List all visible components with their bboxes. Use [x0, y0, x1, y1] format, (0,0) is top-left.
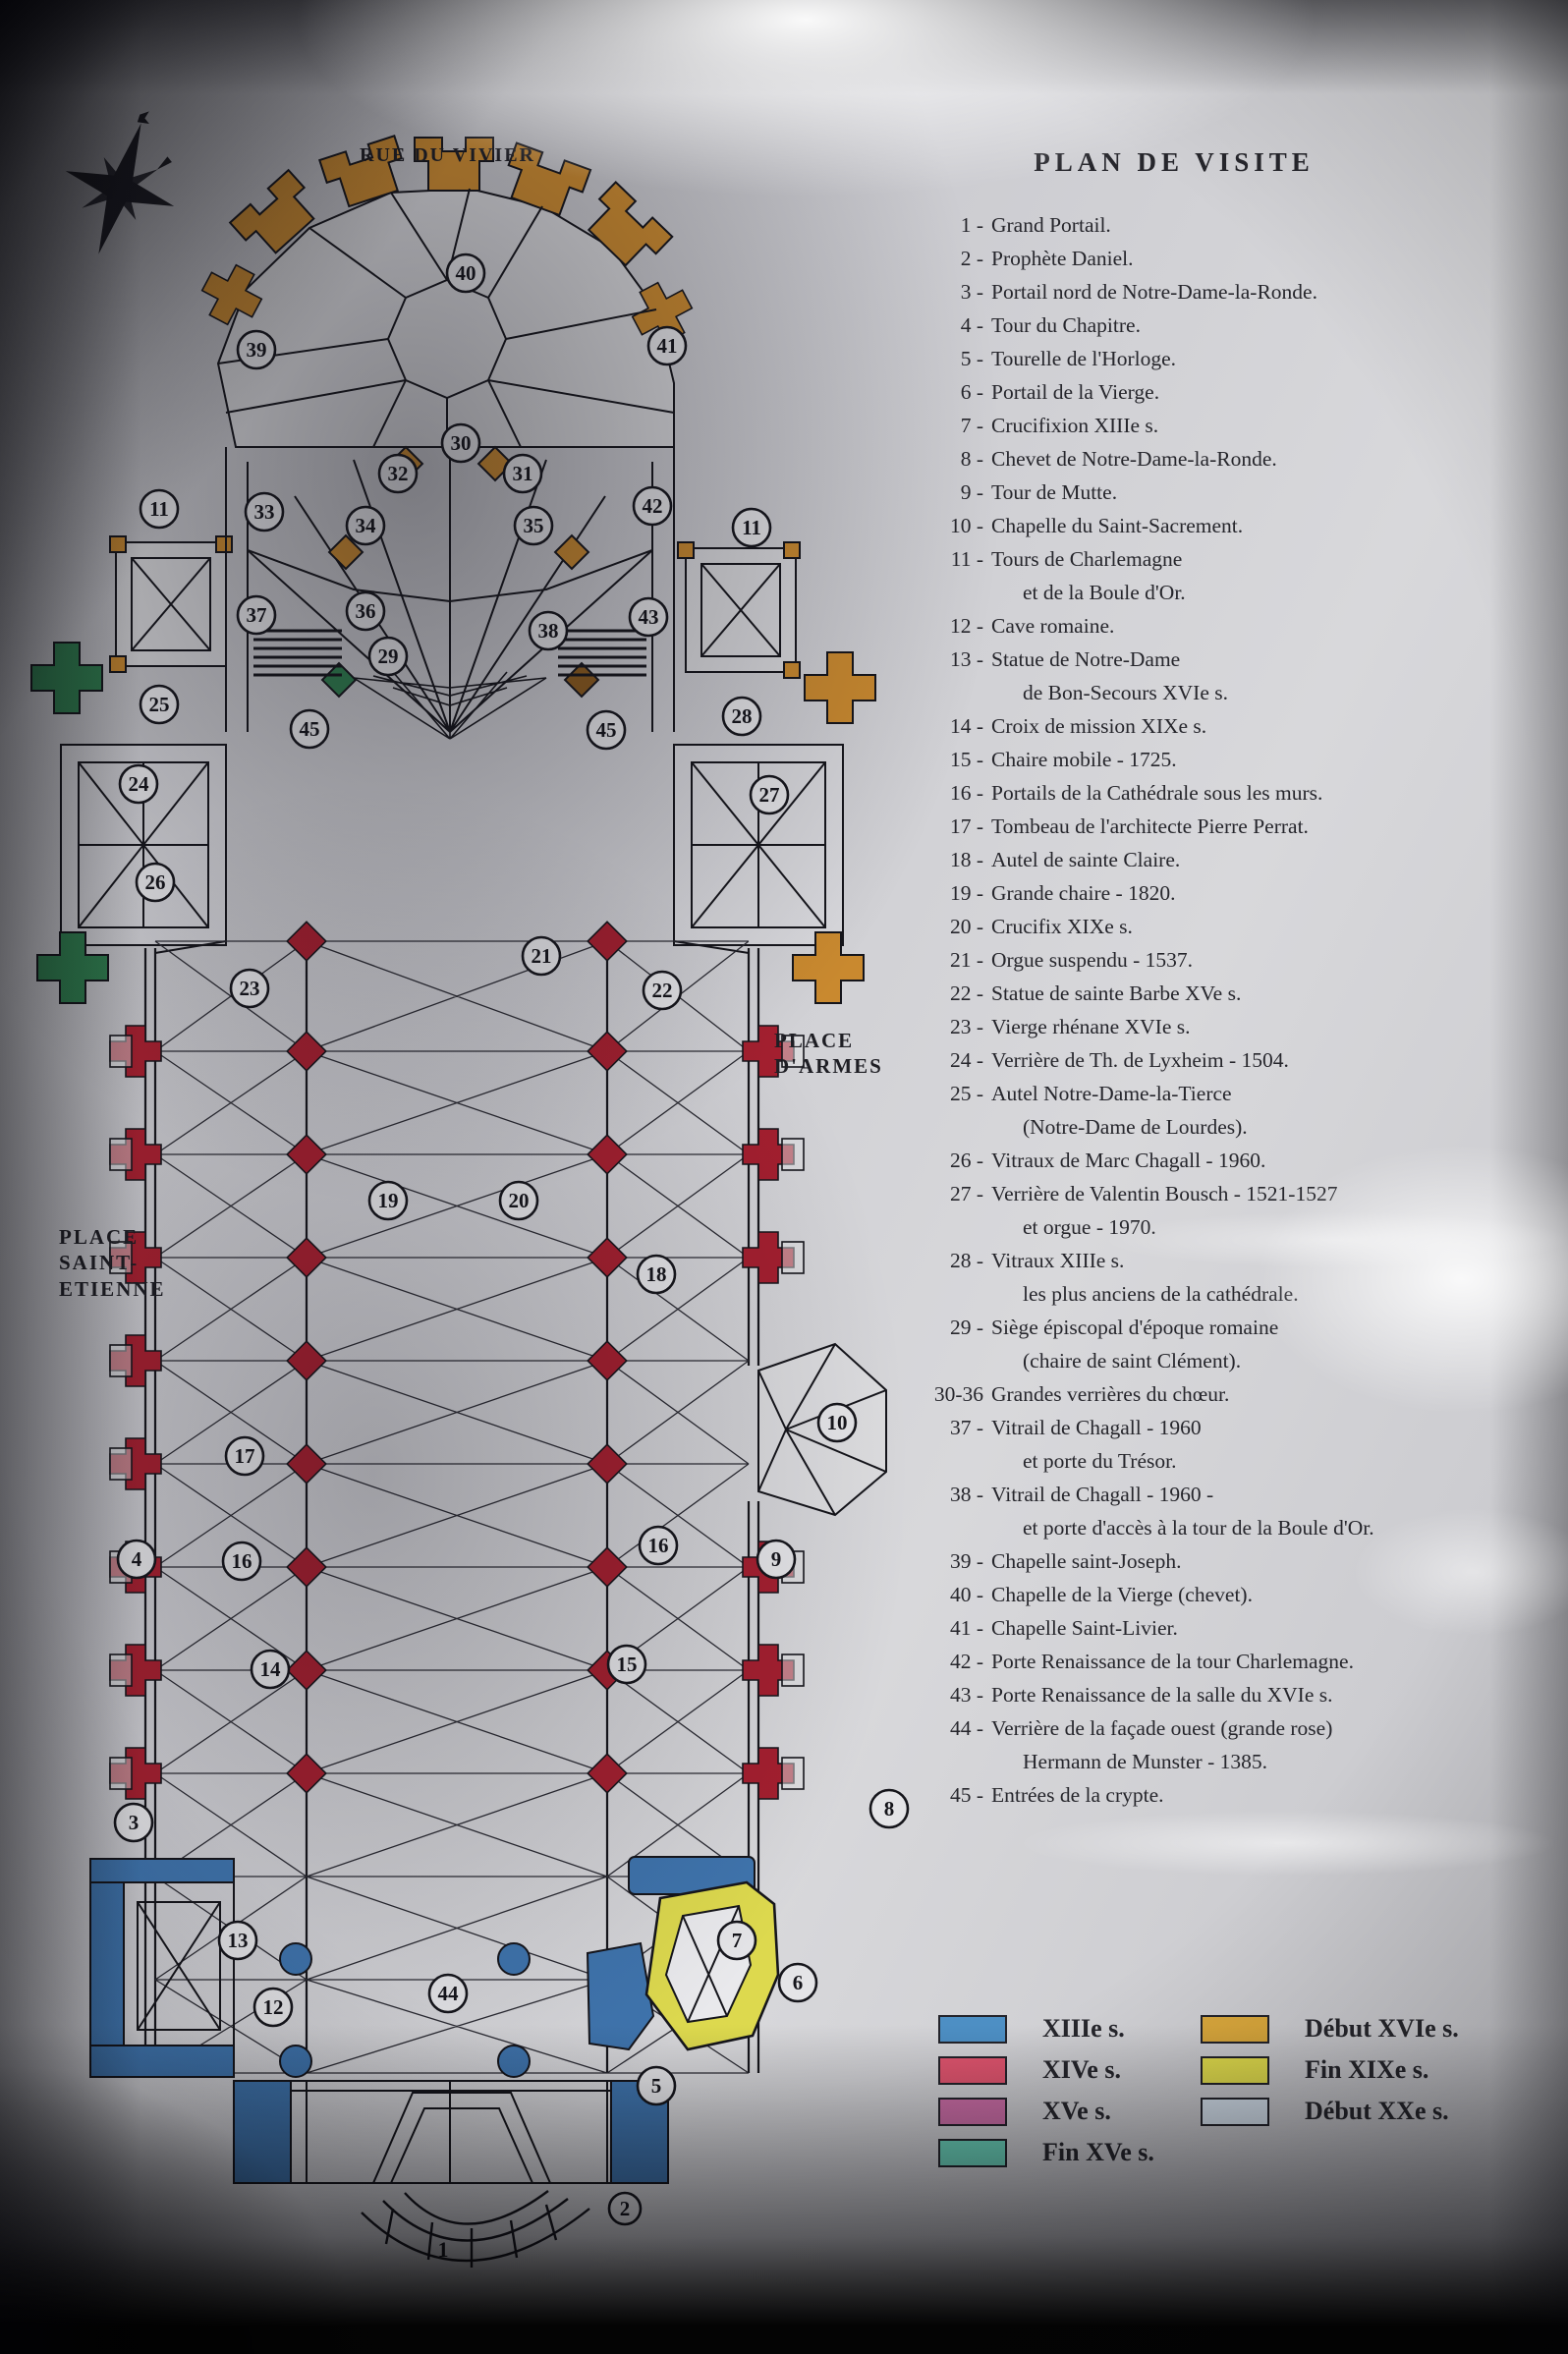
svg-text:11: 11: [742, 516, 761, 539]
visit-list-item-label: Tourelle de l'Horloge.: [991, 342, 1565, 375]
legend-item: Fin XIXe s.: [1201, 2049, 1459, 2091]
legend-color-swatch: [1201, 2015, 1269, 2044]
svg-text:24: 24: [129, 772, 150, 796]
plan-marker-18: 18: [638, 1256, 675, 1293]
visit-list-item-continuation: Hermann de Munster - 1385.: [928, 1745, 1565, 1778]
visit-list-item-label: Tour du Chapitre.: [991, 308, 1565, 342]
visit-list-item-label: Vitraux de Marc Chagall - 1960.: [991, 1144, 1565, 1177]
legend-label: XIIIe s.: [1042, 2014, 1125, 2044]
svg-text:26: 26: [145, 870, 166, 894]
svg-text:28: 28: [732, 704, 753, 728]
plan-marker-36: 36: [347, 592, 384, 630]
visit-list-item-label: Portail de la Vierge.: [991, 375, 1565, 409]
visit-list-item-number: 18 -: [928, 843, 991, 876]
visit-list-item-label: Grand Portail.: [991, 208, 1565, 242]
plan-marker-15: 15: [608, 1646, 645, 1683]
visit-list-item-label: Crucifixion XIIIe s.: [991, 409, 1565, 442]
plan-marker-13: 13: [219, 1922, 256, 1959]
visit-list-item-number: 43 -: [928, 1678, 991, 1711]
svg-text:8: 8: [884, 1797, 895, 1821]
visit-list-item: 29 -Siège épiscopal d'époque romaine: [928, 1311, 1565, 1344]
visit-list-item-continuation: et porte du Trésor.: [928, 1444, 1565, 1478]
visit-list-item: 24 -Verrière de Th. de Lyxheim - 1504.: [928, 1043, 1565, 1077]
visit-list-item-number: 7 -: [928, 409, 991, 442]
svg-text:29: 29: [378, 645, 399, 668]
plan-marker-30: 30: [442, 424, 479, 462]
visit-list: 1 -Grand Portail.2 -Prophète Daniel.3 -P…: [928, 208, 1565, 1812]
plan-marker-25: 25: [140, 686, 178, 723]
visit-list-item-number: 4 -: [928, 308, 991, 342]
legend-color-swatch: [938, 2056, 1007, 2085]
legend-label: XIVe s.: [1042, 2055, 1121, 2085]
visit-list-item-number: 23 -: [928, 1010, 991, 1043]
legend-item: Début XXe s.: [1201, 2091, 1459, 2132]
visit-list-item-label: Chapelle saint-Joseph.: [991, 1544, 1565, 1578]
legend-right-column: Début XVIe s.Fin XIXe s.Début XXe s.: [1201, 2008, 1459, 2132]
plan-marker-17: 17: [226, 1437, 263, 1475]
visit-list-item: 2 -Prophète Daniel.: [928, 242, 1565, 275]
plan-marker-9: 9: [757, 1541, 795, 1578]
visit-list-item-number: 22 -: [928, 977, 991, 1010]
visit-list-item: 15 -Chaire mobile - 1725.: [928, 743, 1565, 776]
legend-color-swatch: [1201, 2056, 1269, 2085]
plan-marker-6: 6: [779, 1964, 816, 2001]
svg-text:22: 22: [652, 979, 673, 1002]
visit-list-item-label: Portails de la Cathédrale sous les murs.: [991, 776, 1565, 810]
plan-marker-42: 42: [634, 487, 671, 525]
legend-item: XIVe s.: [938, 2049, 1154, 2091]
plan-marker-1: 1: [438, 2237, 449, 2262]
visit-list-item: 1 -Grand Portail.: [928, 208, 1565, 242]
visit-list-item: 30-36Grandes verrières du chœur.: [928, 1377, 1565, 1411]
plan-marker-38: 38: [530, 612, 567, 649]
visit-list-item-number: 12 -: [928, 609, 991, 643]
svg-text:9: 9: [771, 1547, 782, 1571]
legend-item: Début XVIe s.: [1201, 2008, 1459, 2049]
plan-marker-8: 8: [870, 1790, 908, 1827]
tower-charlemagne: [110, 536, 232, 672]
visit-list-item-label: Tour de Mutte.: [991, 476, 1565, 509]
svg-text:32: 32: [388, 462, 409, 485]
visit-list-item: 40 -Chapelle de la Vierge (chevet).: [928, 1578, 1565, 1611]
svg-text:45: 45: [596, 718, 617, 742]
svg-text:4: 4: [132, 1547, 142, 1571]
visit-list-item-label: Tours de Charlemagne: [991, 542, 1565, 576]
svg-text:14: 14: [260, 1657, 282, 1681]
legend-label: Fin XVe s.: [1042, 2138, 1154, 2167]
visit-list-item: 45 -Entrées de la crypte.: [928, 1778, 1565, 1812]
visit-list-item: 20 -Crucifix XIXe s.: [928, 910, 1565, 943]
legend-label: Début XXe s.: [1305, 2097, 1449, 2126]
visit-list-item: 26 -Vitraux de Marc Chagall - 1960.: [928, 1144, 1565, 1177]
visit-list-item-label: Verrière de la façade ouest (grande rose…: [991, 1711, 1565, 1745]
visit-list-item-number: 27 -: [928, 1177, 991, 1210]
svg-text:33: 33: [254, 500, 275, 524]
plan-marker-19: 19: [369, 1182, 407, 1219]
svg-text:11: 11: [149, 497, 169, 521]
choir: [226, 444, 674, 739]
svg-text:34: 34: [356, 514, 377, 537]
plan-marker-12: 12: [254, 1989, 292, 2026]
visit-list-item-label: Chaire mobile - 1725.: [991, 743, 1565, 776]
tower-boule-dor: [678, 542, 800, 678]
visit-list-item-label: Chapelle du Saint-Sacrement.: [991, 509, 1565, 542]
visit-list-item-continuation: et porte d'accès à la tour de la Boule d…: [928, 1511, 1565, 1544]
visit-list-item: 16 -Portails de la Cathédrale sous les m…: [928, 776, 1565, 810]
visit-list-item-number: 14 -: [928, 709, 991, 743]
visit-list-item-label: Vitrail de Chagall - 1960 -: [991, 1478, 1565, 1511]
svg-text:30: 30: [451, 431, 472, 455]
svg-text:23: 23: [240, 977, 260, 1000]
plan-marker-37: 37: [238, 596, 275, 634]
plan-marker-24: 24: [120, 765, 157, 803]
plan-marker-26: 26: [137, 864, 174, 901]
plan-marker-39: 39: [238, 331, 275, 368]
visit-list-item-label: Porte Renaissance de la salle du XVIe s.: [991, 1678, 1565, 1711]
svg-text:7: 7: [732, 1929, 743, 1952]
visit-list-item-number: 9 -: [928, 476, 991, 509]
visit-list-item-number: 1 -: [928, 208, 991, 242]
plan-marker-4: 4: [118, 1541, 155, 1578]
visit-list-item: 11 -Tours de Charlemagne: [928, 542, 1565, 576]
legend-color-swatch: [1201, 2098, 1269, 2126]
visit-list-item-number: 20 -: [928, 910, 991, 943]
plan-marker-40: 40: [447, 254, 484, 292]
svg-text:43: 43: [639, 605, 659, 629]
legend-item: Fin XVe s.: [938, 2132, 1154, 2173]
visit-list-item-number: 40 -: [928, 1578, 991, 1611]
visit-list-item-label: Statue de sainte Barbe XVe s.: [991, 977, 1565, 1010]
svg-text:39: 39: [247, 338, 267, 362]
visit-list-item-label: Vitrail de Chagall - 1960: [991, 1411, 1565, 1444]
visit-list-item-number: 26 -: [928, 1144, 991, 1177]
visit-list-item-label: Vitraux XIIIe s.: [991, 1244, 1565, 1277]
visit-list-item-label: Cave romaine.: [991, 609, 1565, 643]
plan-marker-20: 20: [500, 1182, 537, 1219]
svg-text:27: 27: [759, 783, 780, 807]
visit-list-item-label: Tombeau de l'architecte Pierre Perrat.: [991, 810, 1565, 843]
visit-list-item: 44 -Verrière de la façade ouest (grande …: [928, 1711, 1565, 1745]
visit-list-item-number: 29 -: [928, 1311, 991, 1344]
visit-list-item-label: Chapelle Saint-Livier.: [991, 1611, 1565, 1645]
svg-text:19: 19: [378, 1189, 399, 1212]
plan-marker-45: 45: [291, 710, 328, 748]
visit-list-item-label: Chevet de Notre-Dame-la-Ronde.: [991, 442, 1565, 476]
svg-text:20: 20: [509, 1189, 530, 1212]
yellow-chapel: [646, 1882, 778, 2049]
visit-list-item-continuation: et orgue - 1970.: [928, 1210, 1565, 1244]
plan-marker-21: 21: [523, 937, 560, 975]
svg-text:40: 40: [456, 261, 476, 285]
svg-text:16: 16: [232, 1549, 252, 1573]
svg-text:13: 13: [228, 1929, 249, 1952]
legend-label: Fin XIXe s.: [1305, 2055, 1428, 2085]
visit-list-item: 25 -Autel Notre-Dame-la-Tierce: [928, 1077, 1565, 1110]
visit-list-item-number: 8 -: [928, 442, 991, 476]
page-title: PLAN DE VISITE: [928, 147, 1420, 178]
visit-list-item-label: Chapelle de la Vierge (chevet).: [991, 1578, 1565, 1611]
visit-list-item-label: Statue de Notre-Dame: [991, 643, 1565, 676]
visit-list-item: 43 -Porte Renaissance de la salle du XVI…: [928, 1678, 1565, 1711]
visit-list-item-number: 11 -: [928, 542, 991, 576]
plan-marker-29: 29: [369, 638, 407, 675]
plan-marker-16: 16: [640, 1527, 677, 1564]
svg-text:6: 6: [793, 1971, 804, 1994]
visit-list-item: 27 -Verrière de Valentin Bousch - 1521-1…: [928, 1177, 1565, 1210]
visit-list-item-number: 39 -: [928, 1544, 991, 1578]
visit-list-item: 9 -Tour de Mutte.: [928, 476, 1565, 509]
plan-marker-3: 3: [115, 1804, 152, 1841]
plan-marker-2: 2: [609, 2193, 641, 2224]
visit-list-item-label: Siège épiscopal d'époque romaine: [991, 1311, 1565, 1344]
plan-marker-28: 28: [723, 698, 760, 735]
visit-list-item-label: Vierge rhénane XVIe s.: [991, 1010, 1565, 1043]
visit-list-item-label: Entrées de la crypte.: [991, 1778, 1565, 1812]
svg-text:44: 44: [438, 1982, 460, 2005]
svg-text:42: 42: [643, 494, 663, 518]
visit-list-item-label: Grandes verrières du chœur.: [991, 1377, 1565, 1411]
svg-text:36: 36: [356, 599, 376, 623]
visit-list-item-label: Prophète Daniel.: [991, 242, 1565, 275]
visit-list-item-number: 25 -: [928, 1077, 991, 1110]
visit-list-item-label: Porte Renaissance de la tour Charlemagne…: [991, 1645, 1565, 1678]
visit-list-item-number: 30-36: [928, 1377, 991, 1411]
plan-marker-7: 7: [718, 1922, 756, 1959]
plan-marker-33: 33: [246, 493, 283, 531]
visit-list-item-number: 16 -: [928, 776, 991, 810]
west-block: [90, 1857, 778, 2268]
visit-list-item-label: Autel de sainte Claire.: [991, 843, 1565, 876]
visit-list-item: 19 -Grande chaire - 1820.: [928, 876, 1565, 910]
visit-list-item-label: Grande chaire - 1820.: [991, 876, 1565, 910]
visit-list-item-label: Portail nord de Notre-Dame-la-Ronde.: [991, 275, 1565, 308]
west-portal-steps: [362, 2191, 589, 2268]
visit-list-item: 37 -Vitrail de Chagall - 1960: [928, 1411, 1565, 1444]
visit-list-item: 21 -Orgue suspendu - 1537.: [928, 943, 1565, 977]
svg-text:31: 31: [513, 462, 533, 485]
visit-list-item: 4 -Tour du Chapitre.: [928, 308, 1565, 342]
svg-text:5: 5: [651, 2074, 662, 2098]
visit-list-item: 7 -Crucifixion XIIIe s.: [928, 409, 1565, 442]
visit-list-item: 5 -Tourelle de l'Horloge.: [928, 342, 1565, 375]
visit-list-item-number: 15 -: [928, 743, 991, 776]
visit-list-item-label: Croix de mission XIXe s.: [991, 709, 1565, 743]
plan-marker-27: 27: [751, 776, 788, 813]
plan-marker-43: 43: [630, 598, 667, 636]
visit-list-item-label: Orgue suspendu - 1537.: [991, 943, 1565, 977]
visit-list-item-number: 5 -: [928, 342, 991, 375]
compass-rose-icon: [44, 92, 199, 271]
legend-item: XVe s.: [938, 2091, 1154, 2132]
plan-marker-22: 22: [644, 972, 681, 1009]
visit-list-item-number: 38 -: [928, 1478, 991, 1511]
legend-color-swatch: [938, 2098, 1007, 2126]
visit-list-item: 22 -Statue de sainte Barbe XVe s.: [928, 977, 1565, 1010]
visit-list-item-number: 17 -: [928, 810, 991, 843]
visit-list-item-number: 19 -: [928, 876, 991, 910]
visit-list-item: 17 -Tombeau de l'architecte Pierre Perra…: [928, 810, 1565, 843]
plan-marker-41: 41: [648, 327, 686, 364]
svg-text:41: 41: [657, 334, 678, 358]
visit-list-item: 3 -Portail nord de Notre-Dame-la-Ronde.: [928, 275, 1565, 308]
visit-list-item: 38 -Vitrail de Chagall - 1960 -: [928, 1478, 1565, 1511]
svg-text:25: 25: [149, 693, 170, 716]
plan-marker-14: 14: [252, 1651, 289, 1688]
visit-list-item-number: 45 -: [928, 1778, 991, 1812]
legend-color-swatch: [938, 2015, 1007, 2044]
visit-list-item: 6 -Portail de la Vierge.: [928, 375, 1565, 409]
svg-text:12: 12: [263, 1995, 284, 2019]
visit-list-item-continuation: (Notre-Dame de Lourdes).: [928, 1110, 1565, 1144]
visit-list-item: 13 -Statue de Notre-Dame: [928, 643, 1565, 676]
visit-list-item-number: 37 -: [928, 1411, 991, 1444]
visit-list-item-number: 13 -: [928, 643, 991, 676]
svg-text:21: 21: [532, 944, 552, 968]
visit-list-item-number: 44 -: [928, 1711, 991, 1745]
svg-text:1: 1: [438, 2237, 449, 2262]
visit-list-item: 28 -Vitraux XIIIe s.: [928, 1244, 1565, 1277]
visit-list-item-number: 10 -: [928, 509, 991, 542]
visit-list-item-number: 42 -: [928, 1645, 991, 1678]
svg-text:35: 35: [524, 514, 544, 537]
visit-list-item-number: 41 -: [928, 1611, 991, 1645]
visit-list-item-number: 2 -: [928, 242, 991, 275]
plan-marker-34: 34: [347, 507, 384, 544]
visit-list-item: 42 -Porte Renaissance de la tour Charlem…: [928, 1645, 1565, 1678]
street-label-place-saint-etienne: PLACE SAINT- ETIENNE: [59, 1224, 166, 1302]
legend-label: Début XVIe s.: [1305, 2014, 1459, 2044]
plan-marker-44: 44: [429, 1975, 467, 2012]
plan-marker-45: 45: [588, 711, 625, 749]
visit-list-item: 14 -Croix de mission XIXe s.: [928, 709, 1565, 743]
visit-list-item-continuation: de Bon-Secours XVIe s.: [928, 676, 1565, 709]
visit-list-item-number: 24 -: [928, 1043, 991, 1077]
svg-text:15: 15: [617, 1653, 638, 1676]
visit-list-item-number: 6 -: [928, 375, 991, 409]
svg-text:10: 10: [827, 1411, 848, 1434]
visit-list-item-label: Autel Notre-Dame-la-Tierce: [991, 1077, 1565, 1110]
visit-list-item-number: 3 -: [928, 275, 991, 308]
visit-list-item-label: Crucifix XIXe s.: [991, 910, 1565, 943]
svg-text:3: 3: [129, 1811, 140, 1834]
plan-marker-16: 16: [223, 1542, 260, 1580]
plan-marker-23: 23: [231, 970, 268, 1007]
cathedral-floor-plan: 4039413032314211333435113736384329254545…: [0, 0, 914, 2354]
legend-item: XIIIe s.: [938, 2008, 1154, 2049]
street-label-rue-du-vivier: RUE DU VIVIER: [360, 143, 535, 168]
visit-list-item-number: 28 -: [928, 1244, 991, 1277]
visit-list-item: 12 -Cave romaine.: [928, 609, 1565, 643]
information-panel-photo: 4039413032314211333435113736384329254545…: [0, 0, 1568, 2354]
svg-text:17: 17: [235, 1444, 255, 1468]
svg-text:16: 16: [648, 1534, 669, 1557]
visit-list-item: 18 -Autel de sainte Claire.: [928, 843, 1565, 876]
svg-text:38: 38: [538, 619, 559, 643]
plan-marker-35: 35: [515, 507, 552, 544]
svg-text:37: 37: [247, 603, 267, 627]
legend-left-column: XIIIe s.XIVe s.XVe s.Fin XVe s.: [938, 2008, 1154, 2173]
visit-list-item-label: Verrière de Th. de Lyxheim - 1504.: [991, 1043, 1565, 1077]
visit-list-item-continuation: et de la Boule d'Or.: [928, 576, 1565, 609]
visit-list-item: 41 -Chapelle Saint-Livier.: [928, 1611, 1565, 1645]
svg-text:18: 18: [646, 1262, 667, 1286]
visit-list-item: 8 -Chevet de Notre-Dame-la-Ronde.: [928, 442, 1565, 476]
visit-list-item-continuation: (chaire de saint Clément).: [928, 1344, 1565, 1377]
svg-text:45: 45: [300, 717, 320, 741]
crypt-steps: [354, 668, 546, 739]
visit-list-item-number: 21 -: [928, 943, 991, 977]
visit-list-item-label: Verrière de Valentin Bousch - 1521-1527: [991, 1177, 1565, 1210]
plan-marker-10: 10: [818, 1404, 856, 1441]
plan-marker-31: 31: [504, 455, 541, 492]
plan-marker-5: 5: [638, 2067, 675, 2104]
legend-label: XVe s.: [1042, 2097, 1111, 2126]
legend-color-swatch: [938, 2139, 1007, 2167]
visit-list-item: 39 -Chapelle saint-Joseph.: [928, 1544, 1565, 1578]
visit-list-item-continuation: les plus anciens de la cathédrale.: [928, 1277, 1565, 1311]
visit-list-item: 23 -Vierge rhénane XVIe s.: [928, 1010, 1565, 1043]
plan-marker-11: 11: [733, 509, 770, 546]
plan-marker-32: 32: [379, 455, 417, 492]
svg-text:2: 2: [620, 2197, 631, 2220]
visit-list-item: 10 -Chapelle du Saint-Sacrement.: [928, 509, 1565, 542]
plan-marker-11: 11: [140, 490, 178, 528]
street-label-place-d-armes: PLACE D'ARMES: [774, 1028, 883, 1080]
chevet-apse: [194, 136, 700, 447]
